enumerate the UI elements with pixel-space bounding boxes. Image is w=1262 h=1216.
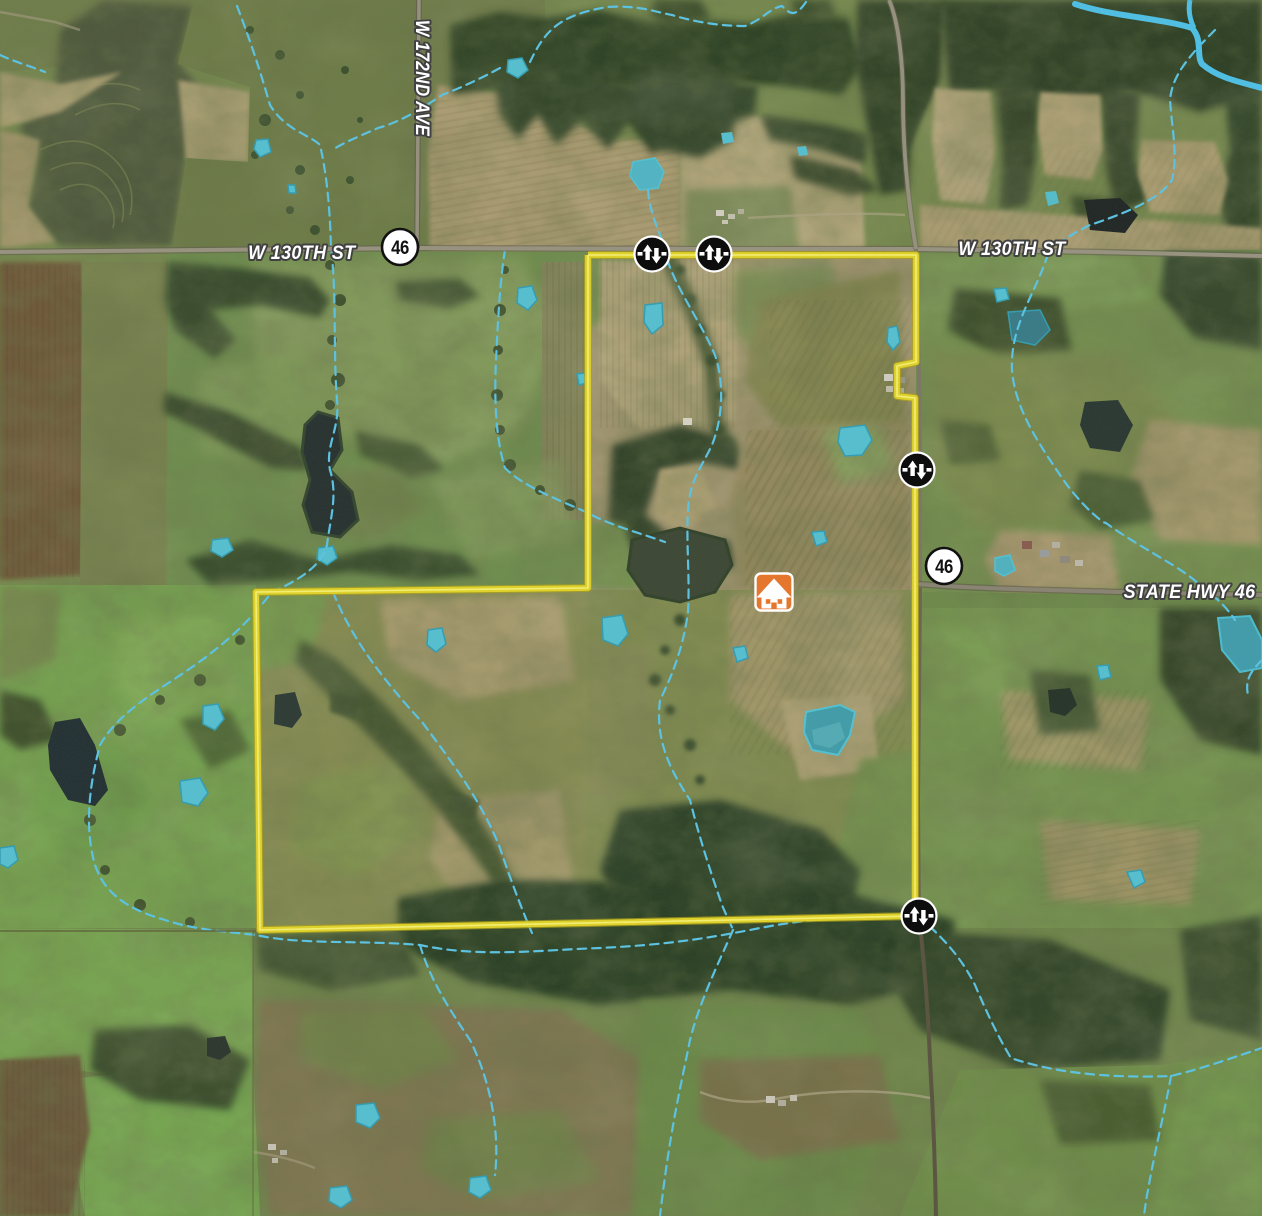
svg-text:STATE HWY 46: STATE HWY 46 [1124, 580, 1256, 602]
svg-text:W 130TH ST: W 130TH ST [958, 237, 1066, 259]
svg-text:W 172ND AVE: W 172ND AVE [412, 20, 434, 137]
svg-text:W 130TH ST: W 130TH ST [248, 241, 356, 263]
